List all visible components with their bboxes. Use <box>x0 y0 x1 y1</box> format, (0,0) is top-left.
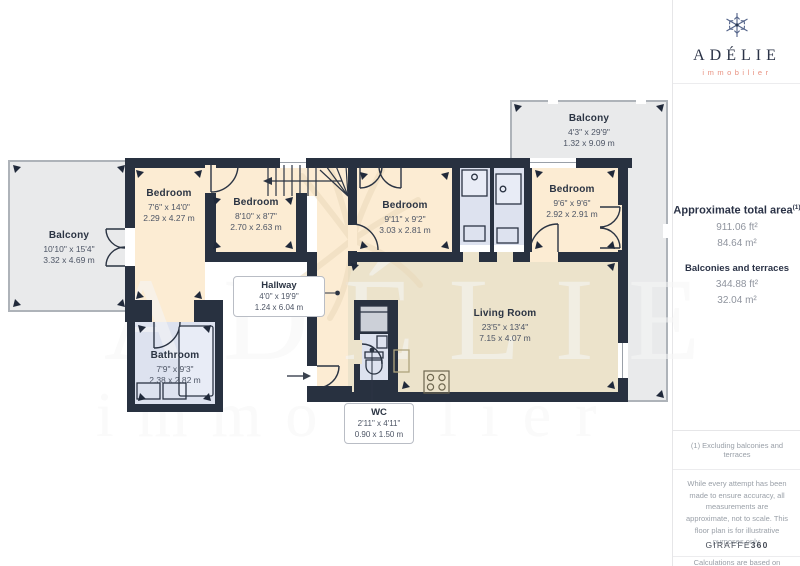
room-label-bedroom-1: Bedroom 7'6" x 14'0" 2.29 x 4.27 m <box>129 188 209 224</box>
balcony-right-floor <box>626 160 668 402</box>
wall <box>338 392 628 402</box>
area-summary: Approximate total area(1) 911.06 ft² 84.… <box>673 204 800 306</box>
stairs-floor <box>266 165 348 196</box>
sidebar-divider <box>673 556 800 557</box>
snowflake-logo-icon <box>673 10 800 45</box>
total-area-title: Approximate total area(1) <box>673 204 800 217</box>
standard-text: Calculations are based on RICS IPMS 3C s… <box>684 557 790 566</box>
room-label-bathroom: Bathroom 7'9" x 9'3" 2.38 x 2.82 m <box>130 350 220 386</box>
shower-room-1-floor <box>460 167 490 245</box>
room-label-balcony-left: Balcony 10'10" x 15'4" 3.32 x 4.69 m <box>8 230 130 266</box>
brand-name: ADÉLIE <box>673 47 800 65</box>
wall <box>205 252 317 262</box>
window <box>618 343 628 378</box>
room-label-hallway: Hallway 4'0" x 19'9" 1.24 x 6.04 m <box>233 276 325 317</box>
info-sidebar: ADÉLIE immobilier Approximate total area… <box>672 0 800 566</box>
window <box>280 158 306 168</box>
total-area-m: 84.64 m² <box>673 238 800 249</box>
giraffe360-watermark: GIRAFFE360 <box>673 540 800 550</box>
disclaimer: While every attempt has been made to ens… <box>673 466 800 566</box>
door-opening <box>497 252 513 262</box>
wc-floor <box>360 334 388 380</box>
wall <box>357 252 628 262</box>
room-label-bedroom-3: Bedroom 9'11" x 9'2" 3.03 x 2.81 m <box>355 200 455 236</box>
room-label-bedroom-2: Bedroom 8'10" x 8'7" 2.70 x 2.63 m <box>206 197 306 233</box>
window <box>530 158 576 168</box>
room-label-wc: WC 2'11" x 4'11" 0.90 x 1.50 m <box>344 403 414 444</box>
wall <box>622 205 628 250</box>
balconies-m: 32.04 m² <box>673 295 800 306</box>
brand-subtitle: immobilier <box>673 68 800 77</box>
wall <box>127 404 223 412</box>
balcony-post-notch <box>548 97 558 104</box>
room-label-balcony-top: Balcony 4'3" x 29'9" 1.32 x 9.09 m <box>510 113 668 149</box>
room-label-bedroom-4: Bedroom 9'6" x 9'6" 2.92 x 2.91 m <box>522 184 622 220</box>
disclaimer-text: While every attempt has been made to ens… <box>684 478 790 548</box>
wall <box>307 386 352 402</box>
door-opening <box>307 366 317 386</box>
area-footnote: (1) Excluding balconies and terraces <box>673 430 800 470</box>
room-label-living-room: Living Room 23'5" x 13'4" 7.15 x 4.07 m <box>445 308 565 344</box>
wall <box>125 300 152 322</box>
balconies-ft: 344.88 ft² <box>673 279 800 290</box>
floorplan-canvas: ADÉLIE ADÉLIE immobilier immobilier <box>0 0 672 566</box>
door-opening <box>530 252 558 262</box>
vestibule-floor <box>150 300 194 322</box>
wall <box>618 250 628 402</box>
balcony-post-notch <box>663 224 670 238</box>
total-area-ft: 911.06 ft² <box>673 222 800 233</box>
floorplan-page: ADÉLIE ADÉLIE immobilier immobilier <box>0 0 800 566</box>
balconies-title: Balconies and terraces <box>673 263 800 274</box>
balcony-post-notch <box>636 97 646 104</box>
door-opening <box>354 340 362 364</box>
agency-logo: ADÉLIE immobilier <box>673 0 800 84</box>
washer-slot <box>360 306 388 332</box>
shower-room-2-floor <box>494 167 524 245</box>
door-opening <box>463 252 479 262</box>
wall <box>490 162 494 252</box>
